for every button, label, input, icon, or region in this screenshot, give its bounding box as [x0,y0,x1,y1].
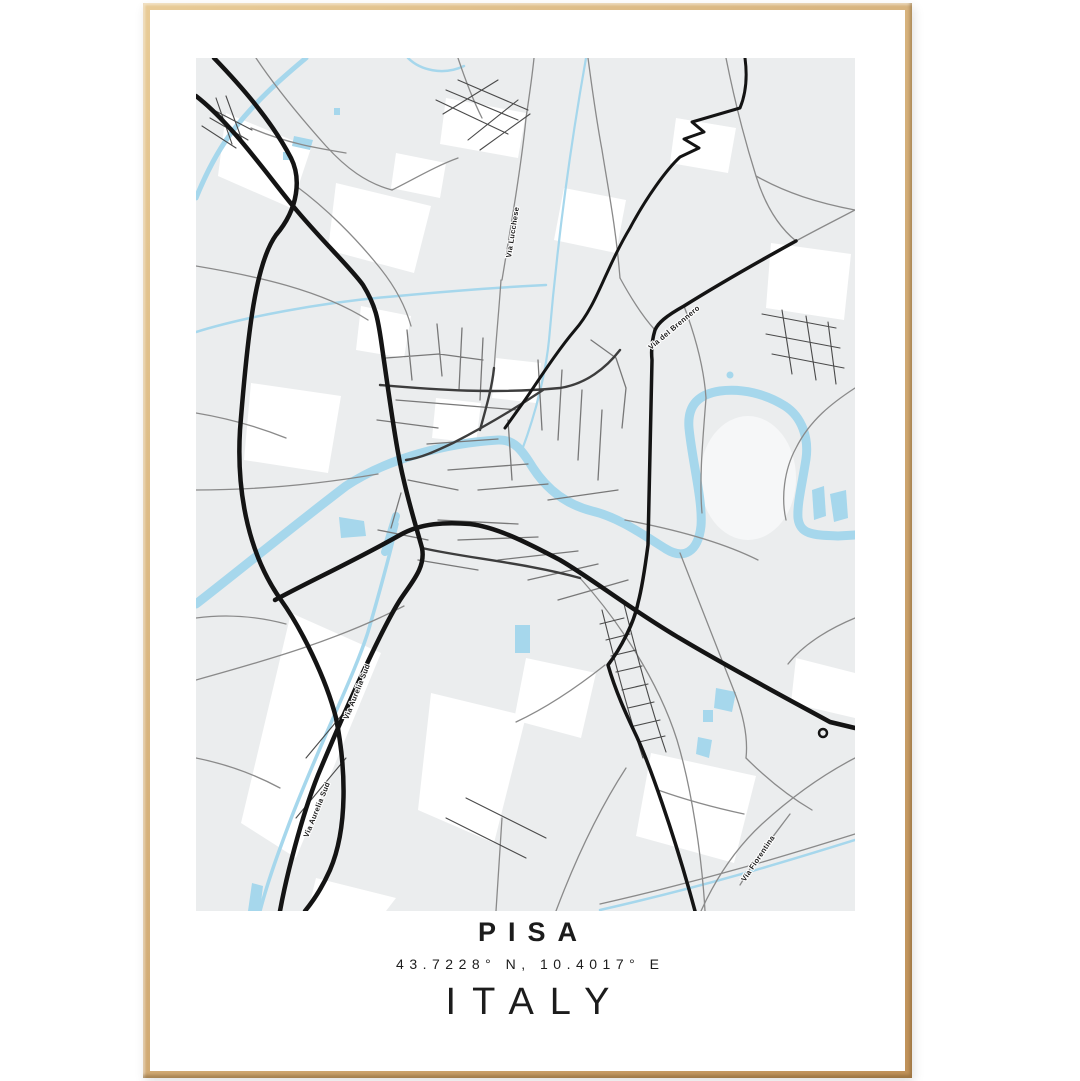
poster-caption: PISA 43.7228° N, 10.4017° E ITALY [150,915,905,1025]
poster-mat: Via Lucchese Via del Brennero Via Aureli… [150,10,905,1071]
poster-frame: Via Lucchese Via del Brennero Via Aureli… [143,3,912,1078]
poster-title-city: PISA [150,915,905,949]
pisa-street-map: Via Lucchese Via del Brennero Via Aureli… [196,58,855,911]
poster-coordinates: 43.7228° N, 10.4017° E [150,951,905,977]
roundabout [819,729,827,737]
poster-title-country: ITALY [150,979,905,1025]
map-area: Via Lucchese Via del Brennero Via Aureli… [196,58,855,911]
page-background: Via Lucchese Via del Brennero Via Aureli… [0,0,1080,1081]
